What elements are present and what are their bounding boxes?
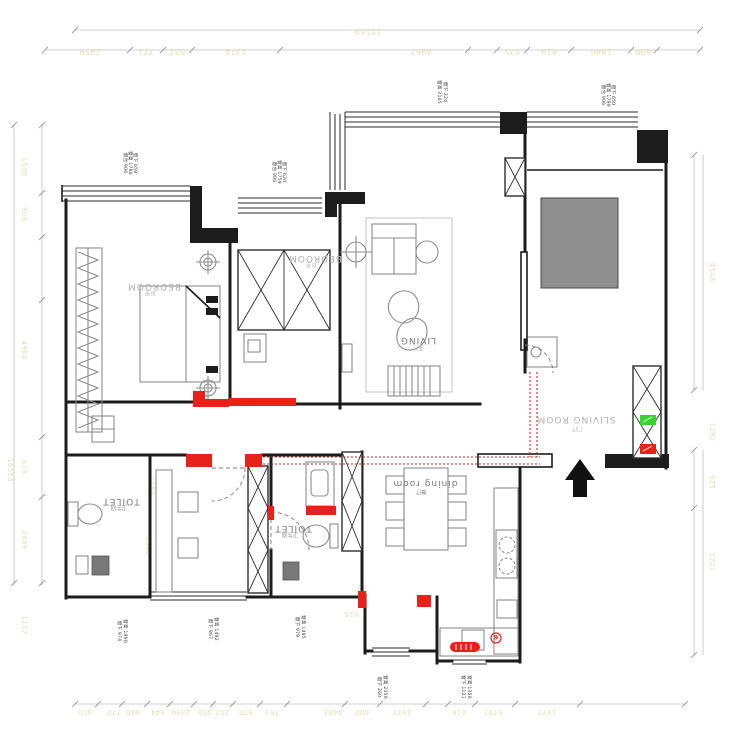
dim-bottom-10: 600 [355, 708, 369, 716]
master-door-arc [525, 345, 553, 373]
dim-left-total: 16553 [6, 458, 14, 482]
window-note: 窗下 979 窗高 1495 [294, 615, 307, 639]
dim-top-4: 4967 [410, 47, 432, 56]
corridor-stub-wall [478, 454, 552, 467]
hall-table [92, 416, 114, 442]
window-note: 窗下 967 窗高 1492 [207, 617, 220, 641]
side-table [416, 241, 438, 263]
floor-lamp-icon [340, 236, 372, 268]
green-highlight-mark [640, 415, 656, 425]
dim-top-7: 1866 [590, 47, 612, 56]
room-label-living: LIVING [400, 335, 436, 345]
dim-bottom-1: 770 [107, 708, 121, 716]
floor-plan-canvas: 15169 2959 771 557 2374 4967 575 619 186… [0, 0, 740, 740]
dim-top-5: 575 [504, 47, 520, 56]
number-badge: 6 [491, 633, 501, 643]
new-wall-mark [228, 398, 296, 406]
study-desk [156, 470, 198, 592]
dim-bottom-3: 944 [151, 708, 166, 716]
dim-inner-2: 625 [344, 610, 358, 618]
toilet-tank [68, 502, 78, 526]
window-note: 窗台 906 窗高 1799 窗下 650 [600, 83, 617, 107]
sofa [372, 224, 416, 274]
kitchen-counter [440, 488, 518, 656]
room-sublabel-dining: 餐厅 [415, 488, 427, 496]
svg-text:窗下 224: 窗下 224 [442, 82, 449, 103]
room-sublabel-toilet2: 卫生间 [282, 531, 299, 539]
red-highlight-mark [640, 444, 656, 454]
svg-text:窗下 979: 窗下 979 [294, 617, 301, 638]
window-note: 窗台 906 窗高 1786 窗下 659 [122, 151, 139, 175]
dimension-chains: 15169 2959 771 557 2374 4967 575 619 186… [6, 27, 716, 716]
ceiling-lamp-icon [196, 250, 220, 274]
room-sublabel-toilet1: 卫生间 [111, 504, 128, 512]
shaft-column [505, 158, 525, 196]
dim-right-0: 4548 [708, 262, 716, 281]
dim-bottom-2: 940 [126, 708, 140, 716]
svg-text:窗高 1356: 窗高 1356 [466, 675, 473, 699]
dim-bottom-14: 1677 [537, 708, 556, 716]
dim-top-total: 15169 [355, 27, 382, 36]
dim-bottom-6: 707 [215, 708, 229, 716]
room-sublabel-entry: 门厅 [571, 425, 583, 433]
study-door-arc [212, 468, 245, 501]
dim-top-3: 2374 [225, 47, 247, 56]
shower-drain [92, 556, 109, 575]
svg-text:窗下 967: 窗下 967 [207, 619, 214, 640]
toilet-tank [330, 524, 338, 548]
new-wall-mark [417, 595, 431, 607]
master-cabinet [527, 337, 557, 367]
dim-bottom-5: 350 [198, 708, 212, 716]
bed-master [541, 198, 618, 288]
room-label-entry: SLIVING ROOM [537, 414, 616, 424]
dim-top-6: 619 [541, 47, 557, 56]
dim-right-2: 975 [708, 475, 716, 489]
dim-bottom-4: 2090 [171, 708, 190, 716]
dim-top-8: 600 [635, 47, 651, 56]
dim-right-1: 1292 [708, 422, 716, 441]
room-sublabel-bedroom2: 卧室 [305, 261, 317, 269]
entrance-arrow [565, 459, 595, 497]
bed-bedroom1 [140, 286, 220, 382]
dim-bottom-13: 6767 [483, 708, 502, 716]
dim-left-3: 619 [20, 460, 28, 474]
room-sublabel-living: 客厅 [412, 344, 424, 352]
dim-right-3: 3721 [708, 552, 716, 571]
dim-top-0: 2959 [79, 47, 101, 56]
svg-text:窗高 2165: 窗高 2165 [436, 80, 443, 104]
dim-top-1: 771 [138, 47, 154, 56]
new-wall-mark [358, 591, 366, 608]
dim-bottom-12: 616 [452, 708, 467, 716]
toilet-bowl [78, 504, 102, 524]
dim-bottom-0: 300 [78, 708, 92, 716]
kitchen-note-pill [450, 642, 480, 652]
window-note: 窗下 260 窗高 2350 [376, 675, 389, 699]
dim-bottom-7: 970 [239, 708, 253, 716]
dim-top-2: 557 [169, 47, 185, 56]
new-wall-mark [186, 454, 212, 467]
window-note: 窗高 2165 窗下 224 [436, 80, 449, 104]
room-label-dining: dining room [393, 478, 458, 488]
window-note: 窗台 906 窗高 1759 窗下 620 [271, 160, 288, 184]
new-wall-mark [306, 506, 336, 515]
room-sublabel-bedroom1: 卧室 [144, 289, 156, 297]
dim-left-4: 2689 [20, 530, 28, 549]
svg-text:窗下 620: 窗下 620 [281, 162, 288, 183]
corridor-wardrobe-1 [248, 466, 268, 593]
drying-rack [76, 248, 102, 432]
window-note: 窗下 1121 窗高 1356 [460, 675, 473, 699]
dim-bottom-8: 763 [265, 708, 279, 716]
dim-left-2: 4964 [20, 340, 28, 359]
washbasin [306, 462, 334, 506]
dim-bottom-9: 4463 [323, 708, 342, 716]
svg-text:窗高 1495: 窗高 1495 [300, 615, 307, 639]
window-note: 窗下 974 窗高 1990 [116, 619, 129, 643]
entry-shoe-cabinet [633, 366, 661, 458]
new-wall-mark [193, 391, 205, 400]
dim-left-0: 1536 [20, 157, 28, 176]
floor-plan-page: 15169 2959 771 557 2374 4967 575 619 186… [0, 0, 740, 740]
toilet2-fixtures [283, 462, 338, 580]
svg-text:窗下 659: 窗下 659 [132, 153, 139, 174]
shower-drain [283, 562, 299, 580]
svg-text:窗下 260: 窗下 260 [376, 677, 383, 698]
sliding-door-leaf[interactable] [521, 252, 527, 350]
svg-text:6: 6 [493, 633, 498, 641]
new-wall-mark [268, 506, 274, 520]
dim-bottom-11: 3977 [392, 708, 411, 716]
new-wall-mark [193, 399, 229, 407]
svg-text:窗高 1492: 窗高 1492 [213, 617, 220, 641]
living-shelf [342, 344, 352, 372]
corridor-wardrobe-2 [342, 452, 362, 551]
dim-left-5: 1117 [20, 615, 28, 634]
new-wall-mark [245, 454, 262, 467]
svg-text:窗下 650: 窗下 650 [610, 85, 617, 106]
desk-bedroom2 [244, 334, 266, 362]
svg-text:窗下 1121: 窗下 1121 [460, 675, 467, 699]
svg-text:窗高 2350: 窗高 2350 [382, 675, 389, 699]
toilet1-fixtures [68, 502, 109, 575]
svg-text:窗高 1990: 窗高 1990 [122, 619, 129, 643]
svg-text:窗下 974: 窗下 974 [116, 621, 123, 642]
dim-left-1: 908 [20, 207, 28, 221]
